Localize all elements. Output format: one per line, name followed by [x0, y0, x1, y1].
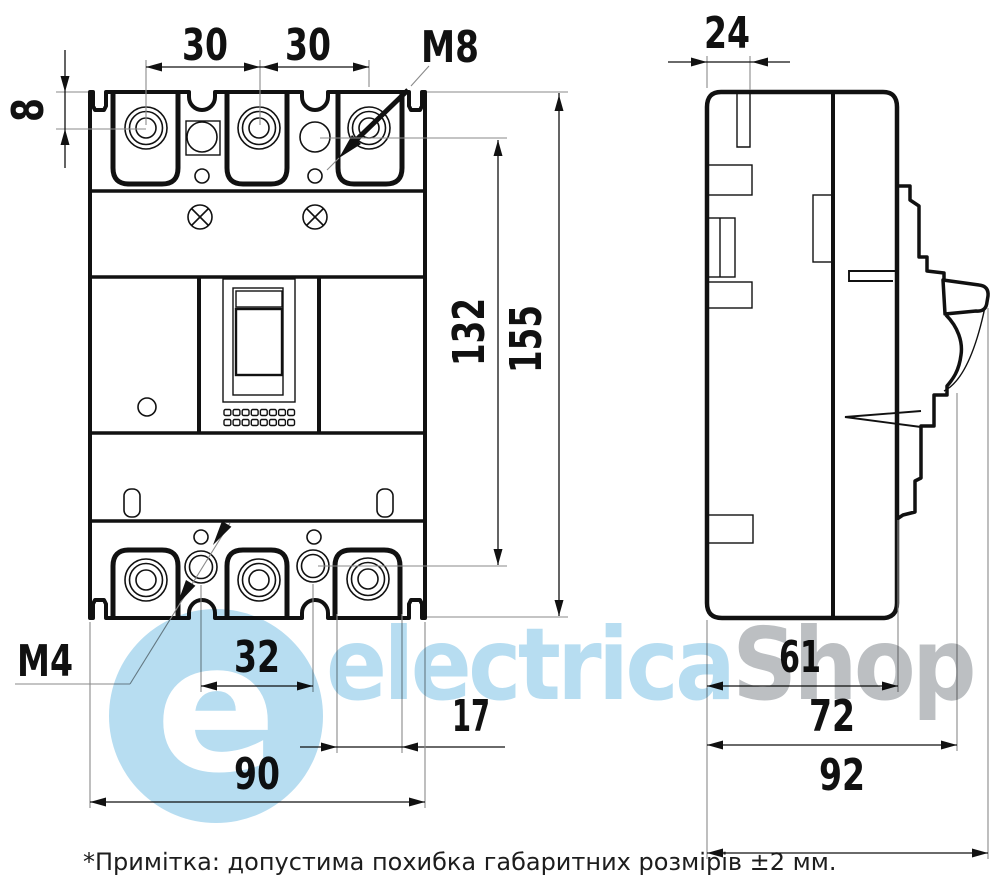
m8-thread-label: M8: [421, 22, 479, 73]
technical-drawing-page: 8 30 30 M8 132: [0, 0, 1000, 885]
breaker-side-outline: [707, 92, 897, 618]
m4-thread-label: M4: [17, 636, 73, 687]
dim-155-label: 155: [501, 305, 552, 373]
dim-90-label: 90: [234, 749, 280, 800]
breaker-front-view: [90, 92, 425, 618]
dimension-24: 24: [668, 8, 790, 90]
breaker-side-view: [707, 92, 988, 618]
dim-30-right-label: 30: [285, 20, 331, 71]
tolerance-note: *Примітка: допустима похибка габаритних …: [83, 848, 836, 876]
dim-30-left-label: 30: [182, 20, 228, 71]
dim-8-label: 8: [3, 98, 54, 122]
side-escutcheon-upper: [897, 186, 944, 281]
side-toggle-handle: [943, 280, 988, 314]
dim-132-label: 132: [444, 298, 495, 366]
drawing-canvas: 8 30 30 M8 132: [0, 0, 1000, 885]
dim-61-label: 61: [779, 632, 821, 683]
dim-24-label: 24: [704, 8, 750, 59]
dim-72-label: 72: [809, 691, 855, 742]
dimension-17: 17: [300, 614, 505, 753]
dim-17-label: 17: [452, 691, 490, 742]
side-escutcheon-lower: [897, 315, 961, 519]
toggle-knob: [236, 309, 282, 375]
dim-32-label: 32: [234, 632, 280, 683]
dim-92-label: 92: [819, 750, 865, 801]
